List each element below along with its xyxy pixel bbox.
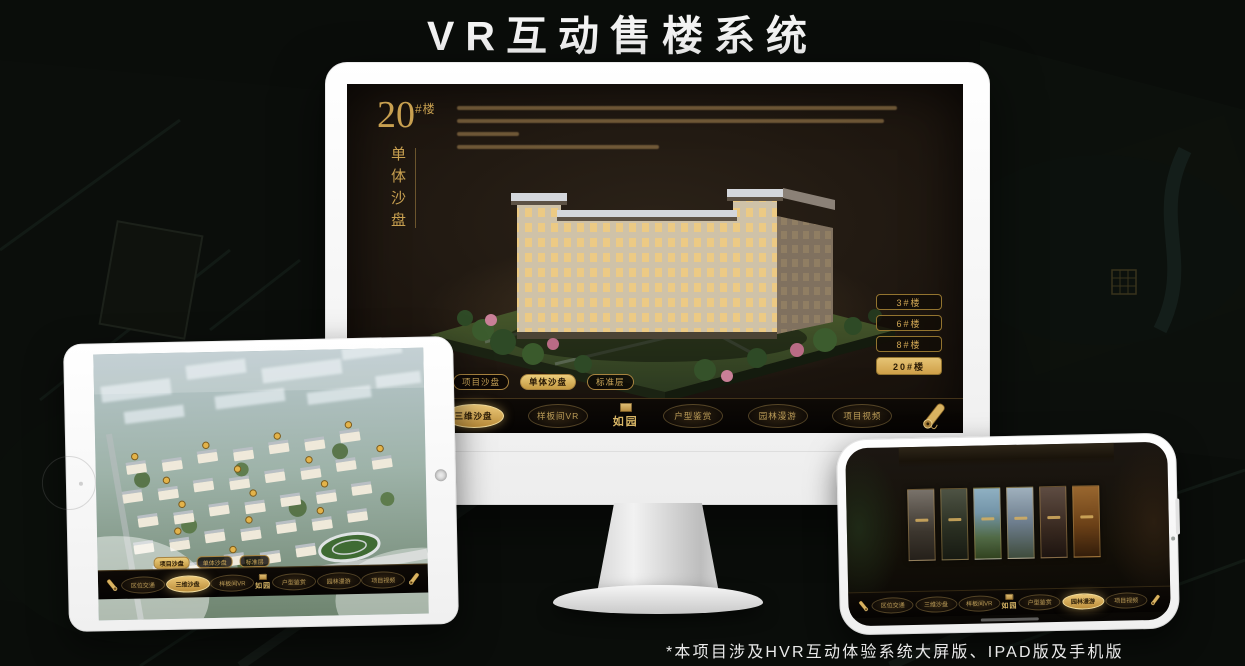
scene-panel-label xyxy=(981,518,994,521)
nav-item-project-video[interactable]: 项目视频 xyxy=(832,404,892,428)
scroll-ornament-icon[interactable] xyxy=(406,568,422,590)
nav-item-unit-gallery[interactable]: 户型鉴赏 xyxy=(663,404,723,428)
building-headline: 20#楼 xyxy=(377,96,436,134)
scene-panel-label xyxy=(915,519,928,522)
scene-panel[interactable] xyxy=(1006,486,1035,559)
tablet-device: 项目沙盘 单体沙盘 标准层 区位交通 三维沙盘 样板间VR 如园 xyxy=(63,336,459,632)
page: VR互动售楼系统 20#楼 单体沙盘 xyxy=(0,0,1245,666)
nav-item-model-room-vr[interactable]: 样板间VR xyxy=(210,574,254,592)
brand-seal-icon xyxy=(1005,594,1013,600)
phone-camera-icon xyxy=(1171,537,1175,541)
brand-logo[interactable]: 如园 xyxy=(1001,594,1017,611)
phone-home-indicator[interactable] xyxy=(981,617,1039,621)
floor-button-group: 3#楼 6#楼 8#楼 20#楼 xyxy=(876,294,942,375)
phone-side-button[interactable] xyxy=(1175,498,1180,534)
nav-item-3d-sandtable[interactable]: 三维沙盘 xyxy=(915,596,957,613)
tab-project-sandtable[interactable]: 项目沙盘 xyxy=(453,374,509,390)
nav-item-model-room-vr[interactable]: 样板间VR xyxy=(528,404,588,428)
tab-single-sandtable[interactable]: 单体沙盘 xyxy=(520,374,576,390)
scene-panel-label xyxy=(1080,516,1093,519)
background-signboard xyxy=(100,221,203,338)
brand-logo-text: 如园 xyxy=(255,580,271,590)
tablet-tab-single-sandtable[interactable]: 单体沙盘 xyxy=(197,556,233,569)
scene-panel[interactable] xyxy=(973,487,1002,560)
footnote-text: *本项目涉及HVR互动体验系统大屏版、IPAD版及手机版 xyxy=(666,638,1124,662)
brand-logo-text: 如园 xyxy=(1001,601,1017,611)
tablet-camera-icon xyxy=(79,482,83,486)
floor-button-3[interactable]: 3#楼 xyxy=(876,294,942,310)
scene-panel-label xyxy=(1047,516,1060,519)
monitor-stand xyxy=(597,503,719,593)
scroll-ornament-icon[interactable] xyxy=(1148,589,1162,609)
nav-item-3d-sandtable[interactable]: 三维沙盘 xyxy=(165,575,209,593)
building-3d-render[interactable] xyxy=(405,130,905,400)
scene-panel[interactable] xyxy=(907,489,936,562)
scene-panel[interactable] xyxy=(940,488,969,561)
scene-panel-label xyxy=(1014,517,1027,520)
scroll-ornament-icon[interactable] xyxy=(917,401,951,431)
nav-item-location-traffic[interactable]: 区位交通 xyxy=(121,576,165,594)
brand-logo[interactable]: 如园 xyxy=(613,403,639,429)
floor-button-8[interactable]: 8#楼 xyxy=(876,336,942,352)
monitor-stand-base xyxy=(553,585,763,614)
floor-button-20[interactable]: 20#楼 xyxy=(876,357,942,375)
brand-seal-icon xyxy=(259,573,267,579)
nav-item-location-traffic[interactable]: 区位交通 xyxy=(872,596,914,613)
nav-item-garden-roam[interactable]: 园林漫游 xyxy=(1062,593,1104,610)
tablet-screen: 项目沙盘 单体沙盘 标准层 区位交通 三维沙盘 样板间VR 如园 xyxy=(93,348,428,621)
nav-item-unit-gallery[interactable]: 户型鉴赏 xyxy=(1019,593,1061,610)
brand-seal-icon xyxy=(620,403,632,412)
nav-item-project-video[interactable]: 项目视频 xyxy=(1105,592,1147,609)
building-number-suffix: #楼 xyxy=(415,102,436,116)
page-title: VR互动售楼系统 xyxy=(0,2,1245,62)
nav-item-unit-gallery[interactable]: 户型鉴赏 xyxy=(272,572,316,590)
view-tab-group: 项目沙盘 单体沙盘 标准层 xyxy=(453,374,634,390)
nav-item-project-video[interactable]: 项目视频 xyxy=(361,571,405,589)
scene-panel-gallery xyxy=(907,485,1100,561)
nav-item-garden-roam[interactable]: 园林漫游 xyxy=(316,571,360,589)
scroll-ornament-icon[interactable] xyxy=(104,574,120,596)
tab-standard-floor[interactable]: 标准层 xyxy=(587,374,634,390)
phone-device: 区位交通 三维沙盘 样板间VR 如园 户型鉴赏 园林漫游 项目视频 xyxy=(836,432,1180,635)
nav-item-garden-roam[interactable]: 园林漫游 xyxy=(748,404,808,428)
phone-screen: 区位交通 三维沙盘 样板间VR 如园 户型鉴赏 园林漫游 项目视频 xyxy=(845,442,1171,627)
scroll-ornament-icon[interactable] xyxy=(856,595,870,615)
brand-logo[interactable]: 如园 xyxy=(255,573,271,590)
nav-item-model-room-vr[interactable]: 样板间VR xyxy=(958,595,1000,612)
scene-panel[interactable] xyxy=(1072,485,1101,558)
brand-logo-text: 如园 xyxy=(613,413,639,429)
scene-panel-label xyxy=(948,518,961,521)
scene-panel[interactable] xyxy=(1039,486,1068,559)
floor-button-6[interactable]: 6#楼 xyxy=(876,315,942,331)
tablet-tab-standard-floor[interactable]: 标准层 xyxy=(240,555,270,568)
tablet-tab-project-sandtable[interactable]: 项目沙盘 xyxy=(154,557,190,570)
